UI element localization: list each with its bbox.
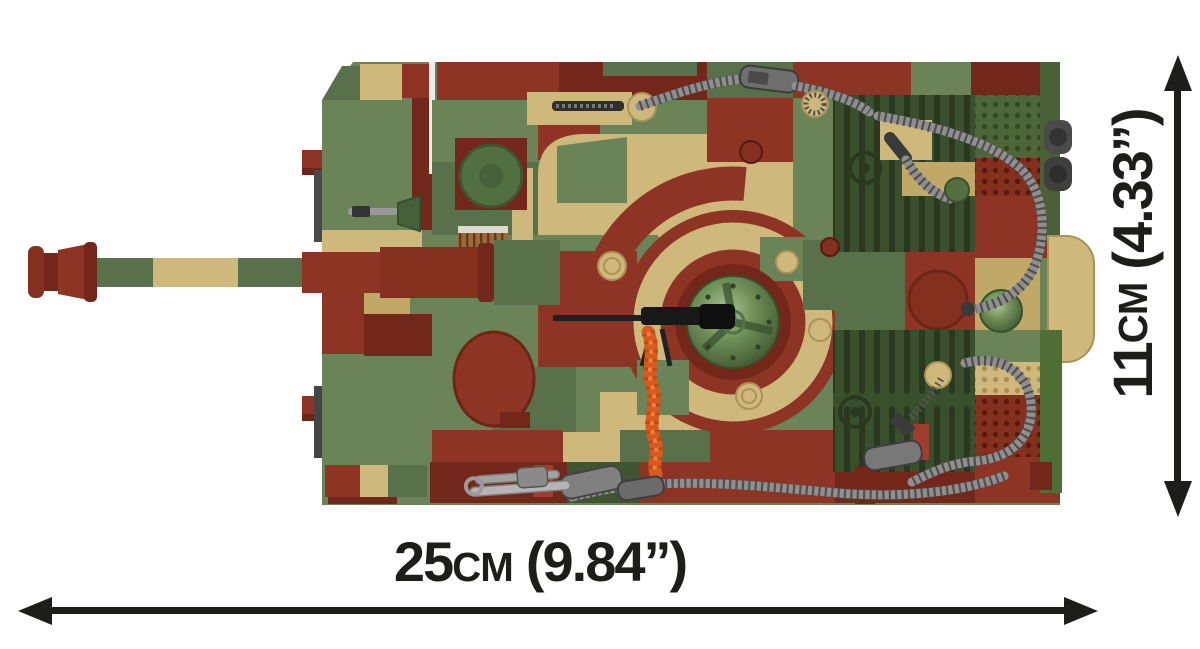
width-arrow-icon [52,607,1064,614]
width-unit: cm [452,544,513,590]
height-arrow-icon [1174,91,1181,481]
height-imperial: (4.33”) [1105,109,1161,269]
height-unit: cm [1113,283,1153,344]
height-dimension-label: 11cm(4.33”) [1105,54,1161,454]
width-dimension-label: 25cm(9.84”) [240,534,840,590]
engine-deck [833,62,1094,504]
muzzle-brake [28,242,97,302]
gun-barrel [28,240,560,305]
product-dimension-image: 25cm(9.84”) 11cm(4.33”) [0,0,1200,649]
hull-side-tabs [302,150,324,458]
width-imperial: (9.84”) [526,530,686,593]
height-value: 11 [1105,343,1161,398]
width-value: 25 [394,530,452,593]
